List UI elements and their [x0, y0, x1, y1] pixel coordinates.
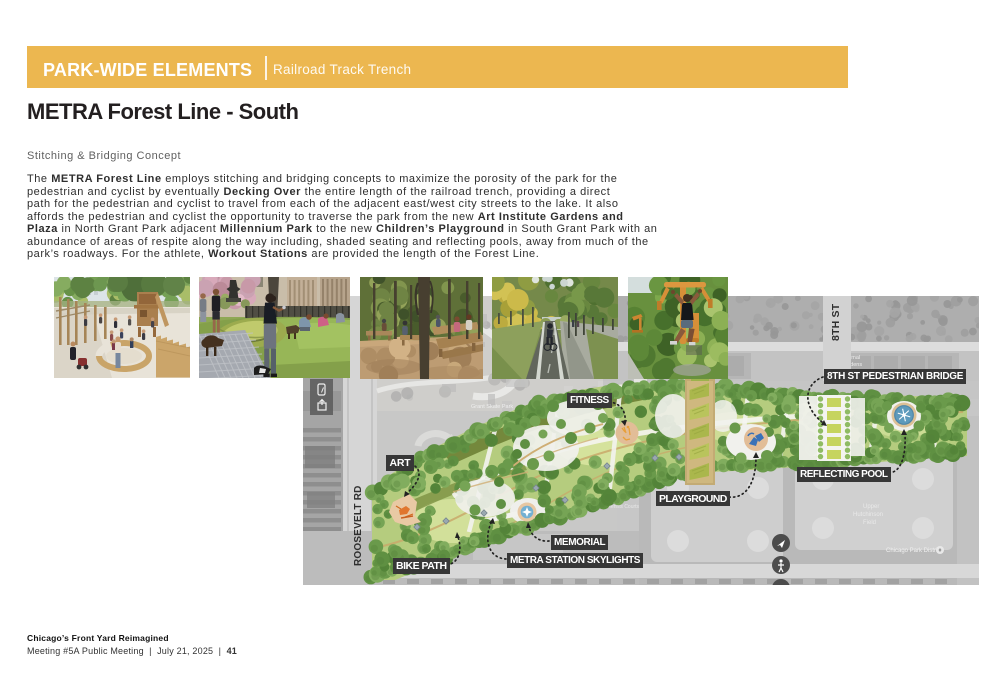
svg-text:Upper: Upper [863, 504, 879, 510]
svg-text:Chicago Park District: Chicago Park District [886, 548, 942, 554]
svg-text:Grant Skate Park: Grant Skate Park [471, 404, 513, 410]
svg-text:Hutchinson: Hutchinson [853, 512, 883, 518]
svg-text:Field: Field [863, 520, 876, 526]
